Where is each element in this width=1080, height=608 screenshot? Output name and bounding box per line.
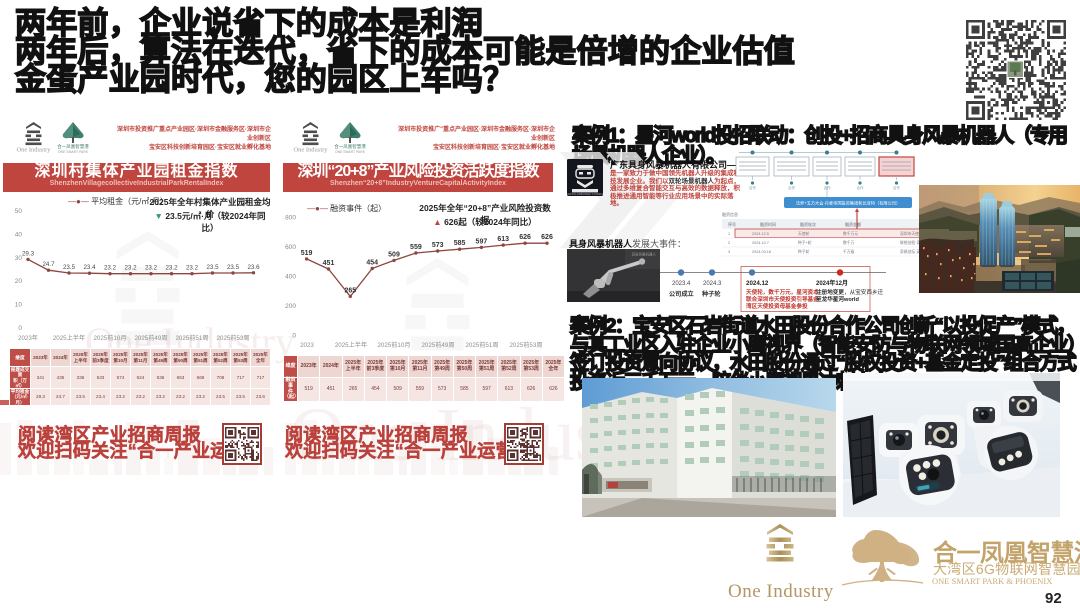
svg-text:200: 200	[285, 303, 296, 310]
svg-text:400: 400	[285, 274, 296, 281]
svg-text:2: 2	[728, 241, 730, 245]
svg-text:20: 20	[15, 278, 23, 285]
svg-text:454: 454	[366, 260, 378, 267]
svg-text:23.5: 23.5	[63, 264, 76, 271]
svg-text:2023.4: 2023.4	[672, 281, 691, 287]
svg-text:天使轮，数千万元，星河资本: 天使轮，数千万元，星河资本	[746, 288, 819, 296]
svg-text:0: 0	[292, 333, 296, 340]
svg-text:2023年: 2023年	[18, 334, 38, 342]
svg-text:2025前51周: 2025前51周	[175, 334, 208, 342]
svg-text:种子轮: 种子轮	[798, 249, 810, 254]
svg-text:23.5: 23.5	[206, 264, 219, 271]
svg-text:23.2: 23.2	[104, 265, 117, 272]
svg-text:23.2: 23.2	[124, 265, 137, 272]
svg-text:联合深圳市天使投资引导基金: 联合深圳市天使投资引导基金	[746, 295, 819, 303]
svg-text:数千万元: 数千万元	[843, 231, 858, 236]
svg-text:23.4: 23.4	[83, 264, 96, 271]
svg-text:2023: 2023	[300, 342, 314, 349]
svg-text:法师+五方大会·丹麦帝国投资集团和比亚特（有限公司）: 法师+五方大会·丹麦帝国投资集团和比亚特（有限公司）	[796, 200, 900, 207]
svg-text:597: 597	[476, 238, 488, 245]
svg-text:10: 10	[15, 302, 23, 309]
svg-text:合一凤凰智慧港: 合一凤凰智慧港	[334, 143, 366, 150]
svg-text:数千万: 数千万	[843, 240, 855, 245]
svg-text:2025上半年: 2025上半年	[53, 334, 85, 342]
svg-text:One Industry: One Industry	[16, 147, 51, 154]
svg-text:2025前51周: 2025前51周	[465, 341, 498, 349]
svg-text:合作: 合作	[788, 185, 796, 190]
svg-text:559: 559	[410, 244, 422, 251]
svg-text:2024.03.18: 2024.03.18	[752, 250, 771, 254]
svg-text:0: 0	[18, 325, 22, 332]
svg-text:2025前53周: 2025前53周	[216, 334, 249, 342]
svg-text:2025前10月: 2025前10月	[93, 334, 126, 342]
svg-text:600: 600	[285, 244, 296, 251]
svg-text:509: 509	[388, 251, 400, 258]
svg-text:30: 30	[15, 255, 23, 262]
svg-text:519: 519	[301, 250, 313, 257]
svg-text:800: 800	[285, 215, 296, 222]
svg-text:GUANGDONG EMBODIED STORM ROBOT: GUANGDONG EMBODIED STORM ROBOT	[567, 192, 603, 196]
svg-text:451: 451	[323, 260, 335, 267]
svg-text:2024.12: 2024.12	[746, 280, 769, 287]
svg-text:23.2: 23.2	[145, 265, 158, 272]
svg-text:种子轮: 种子轮	[701, 290, 721, 298]
svg-text:29.3: 29.3	[22, 250, 35, 257]
svg-text:23.2: 23.2	[186, 265, 199, 272]
svg-text:40: 40	[15, 231, 23, 238]
svg-text:注册地变更，从宝安西乡迁: 注册地变更，从宝安西乡迁	[816, 288, 884, 296]
svg-text:585: 585	[454, 240, 466, 247]
svg-text:2024年12月: 2024年12月	[816, 279, 848, 287]
svg-text:ONE SMART PARK: ONE SMART PARK	[58, 150, 89, 154]
svg-text:2025前49周: 2025前49周	[134, 334, 167, 342]
svg-text:3: 3	[728, 250, 730, 254]
svg-text:融资信息: 融资信息	[722, 211, 738, 217]
svg-text:23.6: 23.6	[247, 264, 260, 271]
svg-text:合作: 合作	[893, 185, 901, 190]
svg-text:24.7: 24.7	[42, 261, 55, 268]
svg-text:合作: 合作	[857, 185, 865, 190]
svg-text:融资时间: 融资时间	[760, 221, 776, 227]
svg-text:合一凤凰智慧港: 合一凤凰智慧港	[57, 143, 89, 150]
svg-text:265: 265	[344, 287, 356, 294]
svg-text:573: 573	[432, 242, 444, 249]
svg-text:真身风暴机器人: 真身风暴机器人	[632, 252, 657, 257]
svg-text:种子+轮: 种子+轮	[798, 240, 812, 245]
svg-text:2024.10.7: 2024.10.7	[752, 241, 769, 245]
svg-text:626: 626	[519, 234, 531, 241]
svg-text:2024.3: 2024.3	[703, 281, 722, 287]
svg-text:23.5: 23.5	[227, 264, 240, 271]
svg-text:千万级: 千万级	[843, 249, 855, 254]
svg-text:2025上半年: 2025上半年	[335, 341, 367, 349]
svg-text:23.2: 23.2	[165, 265, 178, 272]
svg-text:2025前49周: 2025前49周	[421, 341, 454, 349]
svg-text:融资金额: 融资金额	[845, 221, 861, 227]
svg-text:2025前53周: 2025前53周	[509, 341, 542, 349]
svg-text:613: 613	[497, 236, 509, 243]
svg-text:ONE SMART PARK: ONE SMART PARK	[335, 150, 366, 154]
svg-text:1: 1	[728, 232, 730, 236]
svg-text:626: 626	[541, 234, 553, 241]
svg-text:合作: 合作	[749, 185, 757, 190]
svg-text:湾区天使投资母基金参投: 湾区天使投资母基金参投	[746, 302, 808, 310]
svg-text:融资轮次: 融资轮次	[800, 221, 816, 227]
svg-text:序号: 序号	[728, 221, 736, 227]
svg-text:2025前10月: 2025前10月	[377, 341, 410, 349]
svg-text:One Industry: One Industry	[293, 147, 328, 154]
svg-text:天使轮: 天使轮	[798, 231, 810, 236]
svg-text:50: 50	[15, 208, 23, 215]
svg-text:至龙华星河world: 至龙华星河world	[816, 295, 859, 303]
svg-text:公司成立: 公司成立	[669, 290, 694, 298]
svg-text:2024.12.5: 2024.12.5	[752, 232, 769, 236]
